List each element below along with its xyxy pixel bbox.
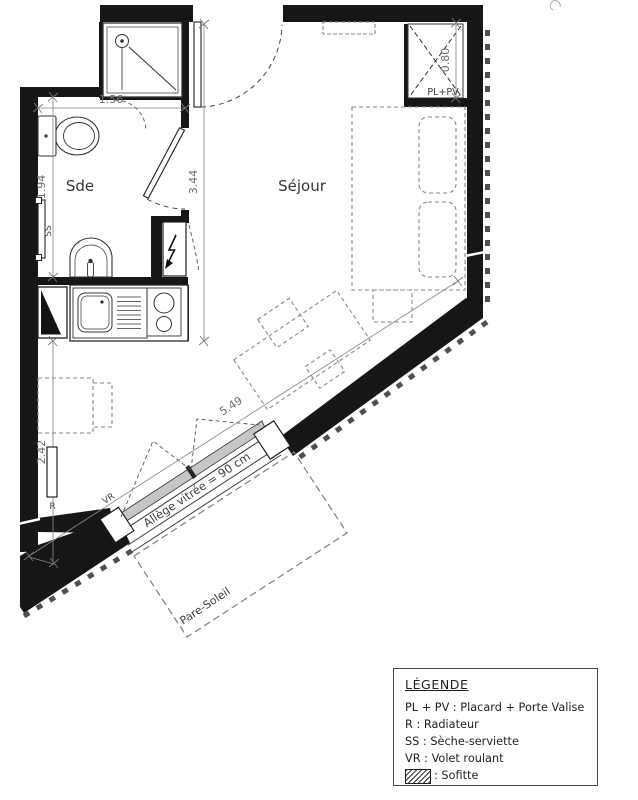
- toilet: [38, 116, 99, 156]
- right-wall: [467, 8, 483, 310]
- sun-shade-outline: [134, 452, 347, 637]
- dim-text-bathroom-length: 1.94: [35, 175, 48, 200]
- dining-chair-2: [305, 350, 344, 388]
- washbasin-tap-dot: [88, 259, 92, 263]
- dim-text-lower-left-wall: 2.42: [35, 440, 48, 465]
- panel-wall-left: [151, 216, 162, 277]
- legend-item-placard: PL + PV : Placard + Porte Valise: [405, 700, 586, 717]
- desk-chair: [93, 383, 112, 427]
- living-room-label: Séjour: [278, 177, 327, 195]
- bed-pillow-bottom: [419, 202, 456, 277]
- dim-text-closet-depth: 0.80: [439, 48, 452, 73]
- legend-item-radiateur: R : Radiateur: [405, 717, 586, 734]
- legend-sofitte-label: : Sofitte: [434, 768, 478, 785]
- radiator-symbol: [47, 447, 57, 497]
- window-sill-line-2: [132, 455, 281, 552]
- nightstand: [373, 290, 412, 322]
- bathroom-bottom-wall: [35, 277, 188, 285]
- diagonal-wall-ticks: [296, 322, 487, 460]
- legend-item-sofitte: : Sofitte: [405, 768, 586, 785]
- bed-pillow-top: [419, 117, 456, 193]
- print-artifact-mark: [550, 1, 560, 10]
- toilet-flush-dot: [44, 134, 47, 137]
- desk: [38, 378, 93, 433]
- dim-text-glazed-facade: 5.49: [217, 394, 245, 418]
- dining-chair-1: [258, 298, 309, 347]
- shower: [103, 23, 182, 97]
- hatch-swatch-icon: [405, 769, 431, 784]
- entrance-door: [194, 22, 282, 107]
- shower-drain-dot: [120, 39, 124, 43]
- legend-title: LÉGENDE: [405, 677, 586, 692]
- bathroom-door: [143, 128, 185, 209]
- legend-item-seche-serviette: SS : Sèche-serviette: [405, 734, 586, 751]
- kitchenette: [70, 285, 188, 341]
- dim-text-bathroom-width: 1.56: [99, 93, 124, 106]
- towel-dryer-end-bottom: [36, 255, 42, 261]
- towel-dryer-label: SS: [44, 225, 54, 237]
- panel-door-arc: [189, 225, 199, 272]
- entrance-door-leaf: [194, 22, 201, 107]
- floor-plan-page: Sde Séjour PL+PV 1.56 1.94 3.44 0.80 2.4…: [0, 0, 638, 800]
- closet-label: PL+PV: [427, 87, 459, 98]
- top-wall-left: [100, 5, 193, 22]
- left-wall: [20, 87, 38, 552]
- bathroom-top-wall: [20, 87, 103, 97]
- sink-tap-dot: [100, 300, 103, 303]
- electrical-panel: [163, 222, 199, 276]
- roller-shutter-label: VR: [101, 492, 117, 507]
- soffit-box: [323, 22, 375, 34]
- bed-outline: [352, 107, 465, 290]
- washbasin-tap: [88, 262, 94, 277]
- entrance-door-swing-arc: [201, 25, 282, 107]
- bathroom-door-leaf: [143, 128, 184, 199]
- radiator-label: R: [49, 502, 55, 512]
- bathroom-label: Sde: [66, 177, 94, 195]
- legend-item-volet-roulant: VR : Volet roulant: [405, 751, 586, 768]
- dim-text-entry-wall: 3.44: [187, 170, 200, 195]
- washbasin: [70, 238, 112, 277]
- closet-bottom-wall: [404, 98, 483, 107]
- bathroom-door-swing-arc: [147, 199, 185, 209]
- legend: LÉGENDE PL + PV : Placard + Porte Valise…: [393, 668, 598, 786]
- technical-duct: [38, 287, 67, 338]
- sun-shade-annotation: Pare-Soleil: [177, 585, 232, 628]
